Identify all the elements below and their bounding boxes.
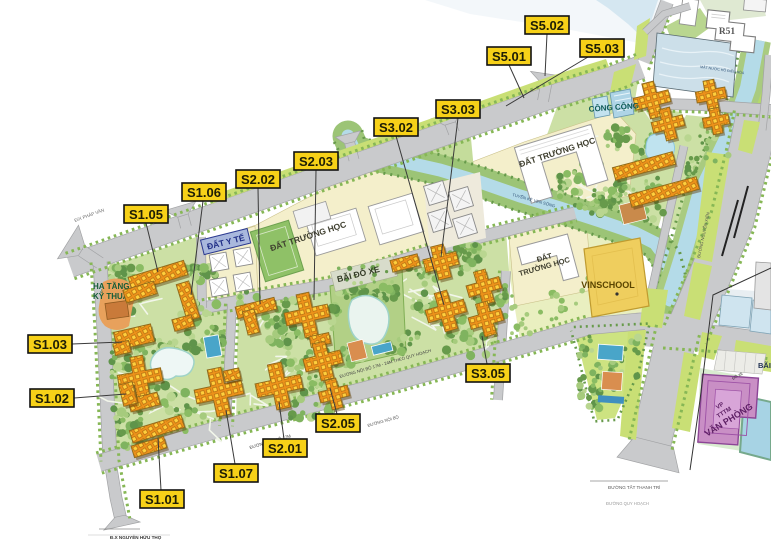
svg-text:BÃI ĐỖ: BÃI ĐỖ — [758, 361, 771, 370]
svg-text:S5.03: S5.03 — [585, 41, 619, 56]
svg-text:S5.01: S5.01 — [492, 49, 526, 64]
svg-text:S3.02: S3.02 — [379, 120, 413, 135]
svg-text:S1.02: S1.02 — [35, 391, 69, 406]
svg-text:S1.07: S1.07 — [219, 466, 253, 481]
svg-text:R51: R51 — [719, 27, 736, 37]
svg-text:S3.03: S3.03 — [441, 102, 475, 117]
svg-text:S2.03: S2.03 — [299, 154, 333, 169]
svg-text:S2.01: S2.01 — [268, 441, 302, 456]
svg-text:S5.02: S5.02 — [530, 18, 564, 33]
svg-text:S1.06: S1.06 — [187, 185, 221, 200]
svg-text:VINSCHOOL: VINSCHOOL — [581, 280, 635, 290]
svg-text:ĐƯỜNG TẮT THANH TRÌ: ĐƯỜNG TẮT THANH TRÌ — [608, 483, 660, 490]
svg-text:HẠ TẦNG: HẠ TẦNG — [93, 281, 129, 291]
svg-text:S2.05: S2.05 — [321, 416, 355, 431]
svg-text:S1.05: S1.05 — [129, 207, 163, 222]
svg-text:S1.01: S1.01 — [145, 492, 179, 507]
svg-text:S2.02: S2.02 — [241, 172, 275, 187]
svg-text:ĐƯỜNG QUY HOẠCH: ĐƯỜNG QUY HOẠCH — [606, 501, 649, 506]
svg-text:S1.03: S1.03 — [33, 337, 67, 352]
svg-text:S3.05: S3.05 — [471, 366, 505, 381]
